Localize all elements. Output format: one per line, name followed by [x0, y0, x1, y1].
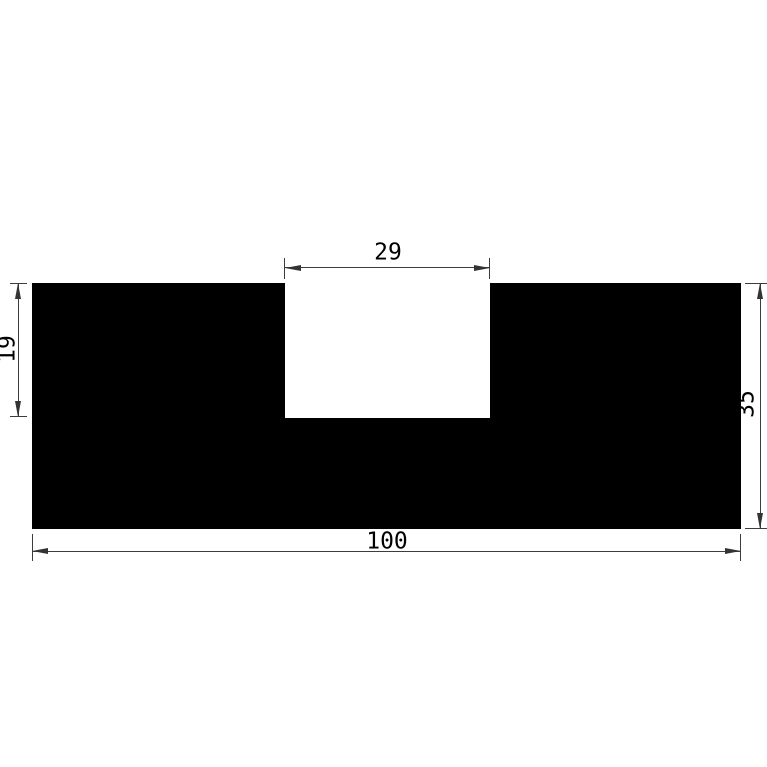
dimension-label-profile-height: 35: [736, 390, 759, 418]
dimension-line: [760, 283, 761, 529]
drawing-canvas: 29 19 35 100: [0, 0, 767, 767]
dimension-arrow-down-icon: [757, 513, 763, 529]
dimension-line: [285, 267, 490, 268]
dimension-arrow-down-icon: [15, 401, 21, 417]
extension-line: [745, 283, 767, 284]
extension-line: [745, 528, 767, 529]
dimension-arrow-right-icon: [725, 548, 741, 554]
profile-notch: [285, 283, 490, 418]
dimension-arrow-right-icon: [474, 265, 490, 271]
dimension-arrow-left-icon: [32, 548, 48, 554]
dimension-arrow-left-icon: [285, 265, 301, 271]
dimension-arrow-up-icon: [15, 283, 21, 299]
dimension-label-notch-width: 29: [374, 242, 402, 265]
dimension-arrow-up-icon: [757, 283, 763, 299]
dimension-label-notch-depth: 19: [0, 335, 20, 363]
dimension-label-profile-width: 100: [366, 531, 408, 554]
